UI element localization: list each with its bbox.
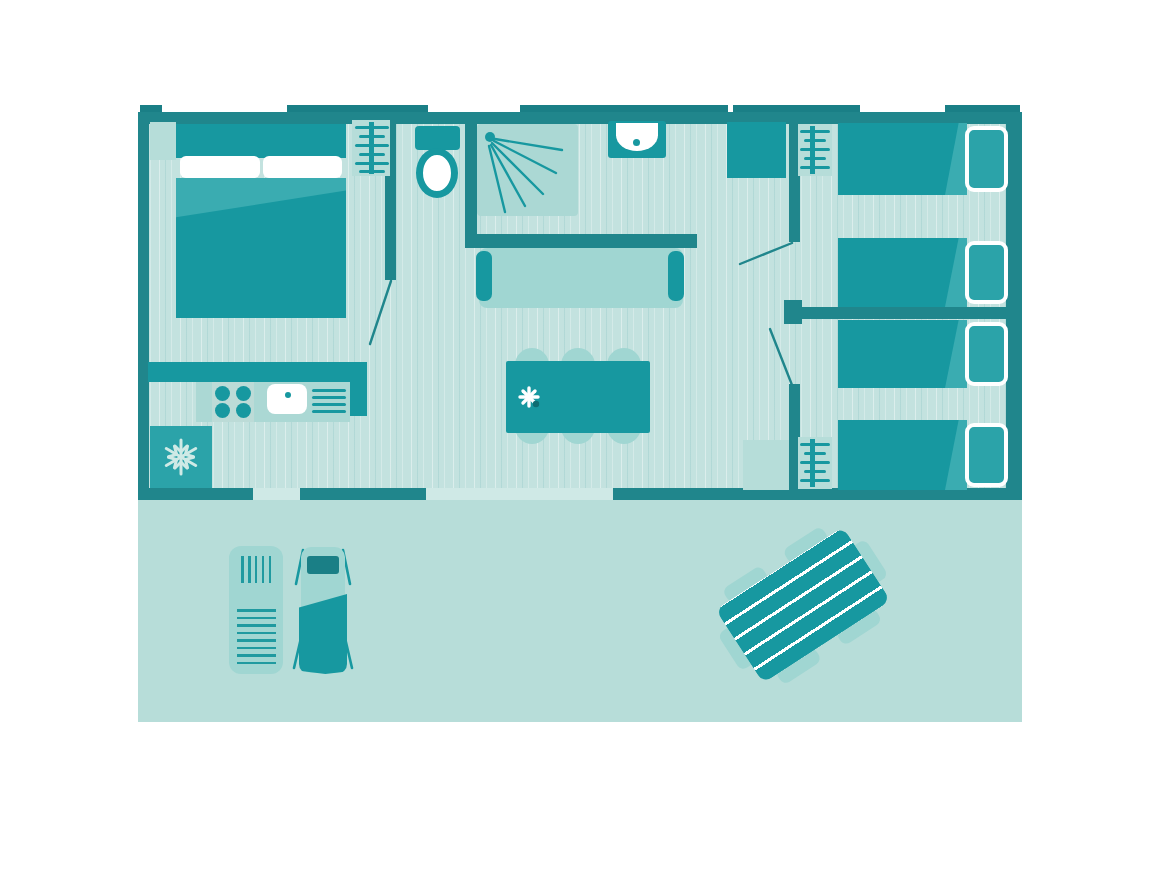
floorplan-canvas <box>0 0 1170 878</box>
door-swing-icon <box>0 0 1170 878</box>
